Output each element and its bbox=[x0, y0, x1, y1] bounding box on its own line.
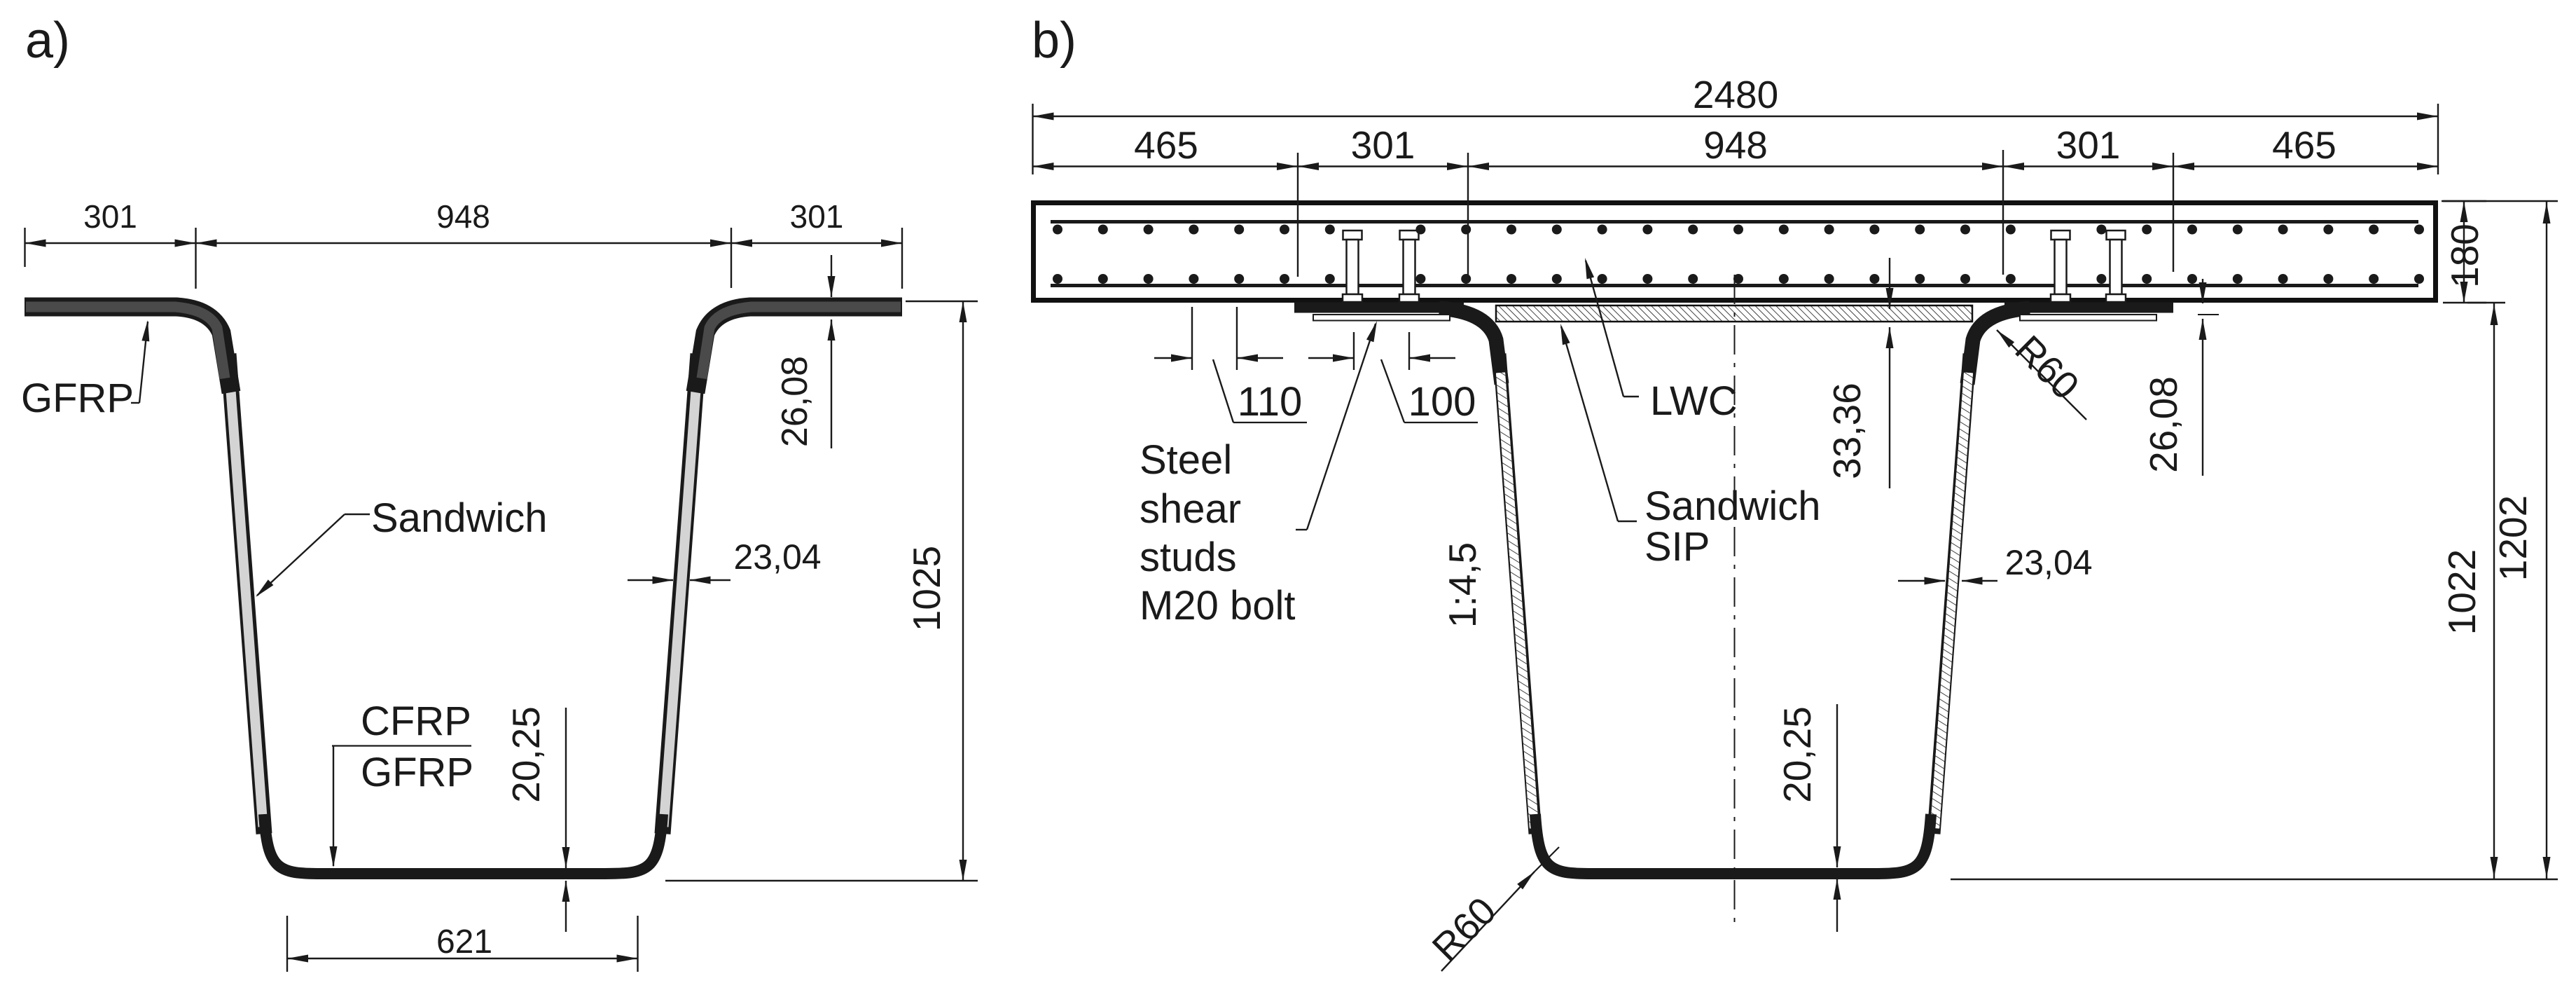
svg-text:301: 301 bbox=[790, 198, 844, 235]
svg-text:23,04: 23,04 bbox=[2004, 543, 2092, 582]
svg-text:33,36: 33,36 bbox=[1825, 383, 1869, 479]
svg-text:CFRP: CFRP bbox=[361, 699, 471, 744]
svg-text:SIP: SIP bbox=[1644, 524, 1710, 570]
svg-text:301: 301 bbox=[1351, 123, 1415, 167]
svg-text:GFRP: GFRP bbox=[361, 750, 473, 795]
svg-text:180: 180 bbox=[2443, 224, 2486, 288]
svg-text:1025: 1025 bbox=[905, 546, 948, 631]
svg-text:26,08: 26,08 bbox=[2142, 376, 2185, 473]
svg-text:a): a) bbox=[25, 13, 70, 69]
svg-text:LWC: LWC bbox=[1650, 378, 1738, 424]
svg-text:studs: studs bbox=[1140, 535, 1237, 580]
svg-text:Sandwich: Sandwich bbox=[1644, 483, 1820, 529]
svg-text:948: 948 bbox=[1703, 123, 1768, 167]
svg-text:20,25: 20,25 bbox=[1775, 706, 1819, 803]
svg-text:1202: 1202 bbox=[2491, 495, 2535, 581]
svg-text:shear: shear bbox=[1140, 486, 1241, 532]
svg-text:621: 621 bbox=[436, 923, 492, 961]
svg-text:b): b) bbox=[1032, 13, 1076, 69]
svg-text:26,08: 26,08 bbox=[775, 356, 815, 447]
svg-text:Steel: Steel bbox=[1140, 437, 1232, 483]
svg-text:2480: 2480 bbox=[1693, 73, 1778, 116]
svg-text:110: 110 bbox=[1238, 379, 1302, 425]
svg-text:Sandwich: Sandwich bbox=[371, 495, 547, 541]
svg-text:GFRP: GFRP bbox=[21, 376, 134, 421]
svg-text:1022: 1022 bbox=[2440, 549, 2484, 635]
svg-text:301: 301 bbox=[83, 198, 137, 235]
svg-text:M20 bolt: M20 bolt bbox=[1140, 583, 1295, 628]
svg-text:100: 100 bbox=[1408, 379, 1476, 425]
svg-text:1:4,5: 1:4,5 bbox=[1441, 542, 1484, 628]
svg-text:20,25: 20,25 bbox=[504, 706, 548, 803]
svg-text:465: 465 bbox=[1134, 123, 1198, 167]
svg-text:465: 465 bbox=[2272, 123, 2336, 167]
svg-text:23,04: 23,04 bbox=[733, 537, 821, 577]
svg-text:948: 948 bbox=[436, 198, 490, 235]
svg-text:301: 301 bbox=[2056, 123, 2121, 167]
